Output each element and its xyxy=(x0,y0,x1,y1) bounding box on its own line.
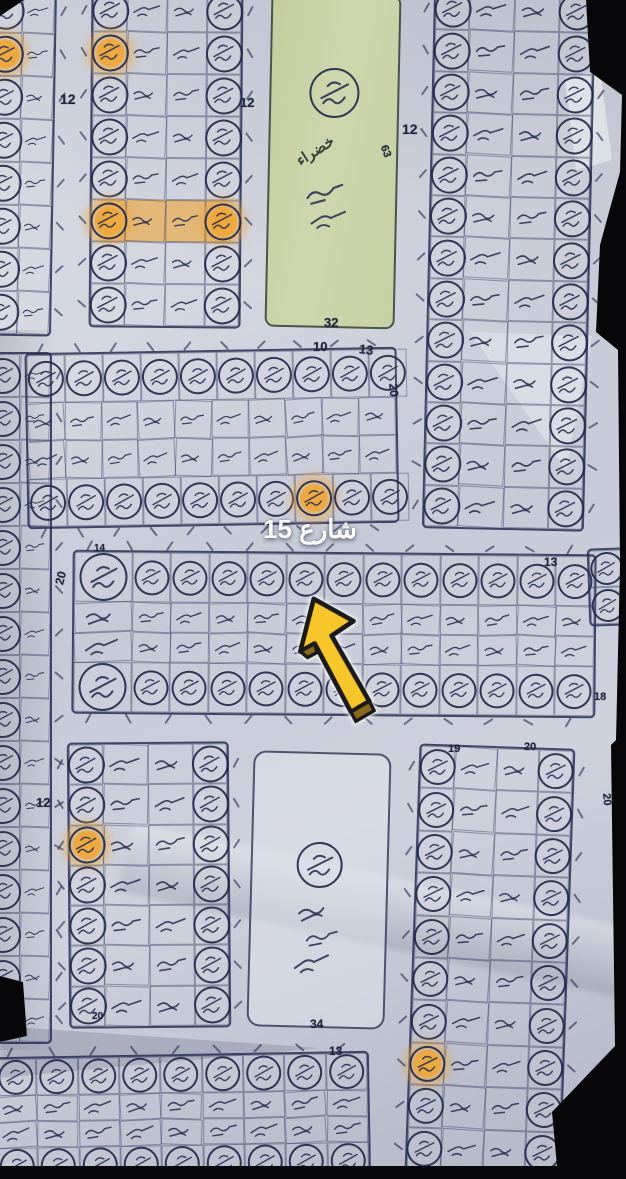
plot-handwriting-cell xyxy=(452,788,497,833)
plot-number-circle xyxy=(78,663,126,711)
plot-cell xyxy=(407,1127,442,1171)
plot-handwriting-cell xyxy=(359,435,396,474)
plot-cell xyxy=(208,663,247,713)
plot-cell xyxy=(0,290,18,334)
survey-tick-mark xyxy=(256,340,265,349)
plot-row xyxy=(425,443,584,488)
plot-number-circle xyxy=(551,283,589,321)
plot-row xyxy=(0,913,50,956)
survey-tick-mark xyxy=(418,210,427,220)
survey-tick-mark xyxy=(420,127,428,137)
plot-cell xyxy=(428,319,463,361)
plot-row xyxy=(71,945,229,987)
plot-block-bottom-left xyxy=(67,741,231,1028)
street-15-caption: شارع 15 xyxy=(240,514,380,545)
plot-cell xyxy=(0,118,21,162)
plot-cell xyxy=(284,1053,326,1091)
street-number-label: 13 xyxy=(358,342,374,357)
survey-tick-mark xyxy=(411,460,422,467)
plot-number-circle xyxy=(68,827,105,864)
plot-number-circle xyxy=(205,119,242,156)
handwriting-scribble xyxy=(278,895,355,930)
street-number-label: 12 xyxy=(402,122,418,136)
plot-row xyxy=(0,0,55,34)
plot-handwriting-cell xyxy=(150,945,195,986)
map-paper: خضراء 1212121013201420131812192020132032… xyxy=(0,0,626,1179)
plot-row xyxy=(434,30,593,75)
plot-handwriting-cell xyxy=(509,238,555,280)
plot-cell xyxy=(0,354,20,397)
plot-cell xyxy=(478,665,517,715)
plot-handwriting-cell xyxy=(37,1121,79,1148)
plot-cell xyxy=(0,956,20,999)
plot-number-circle xyxy=(0,358,21,394)
survey-tick-mark xyxy=(407,803,414,814)
plot-handwriting-cell xyxy=(450,831,495,876)
survey-tick-mark xyxy=(598,48,605,59)
plot-number-circle xyxy=(441,672,476,707)
plot-row xyxy=(431,154,590,199)
plot-row xyxy=(435,0,594,33)
survey-tick-mark xyxy=(59,49,66,60)
survey-tick-mark xyxy=(244,715,253,725)
plot-number-circle xyxy=(416,833,453,870)
plot-handwriting-cell xyxy=(489,960,532,1004)
survey-tick-mark xyxy=(150,527,158,537)
plot-row xyxy=(589,549,624,587)
plot-row xyxy=(411,1000,564,1048)
plot-number-circle xyxy=(426,321,464,359)
plot-handwriting-cell xyxy=(509,197,555,239)
plot-row xyxy=(0,827,50,870)
survey-tick-mark xyxy=(55,222,64,232)
plot-number-circle xyxy=(206,1145,242,1179)
plot-handwriting-cell xyxy=(284,397,323,438)
plot-handwriting-cell xyxy=(19,568,50,612)
plot-block-right-stub xyxy=(587,547,626,626)
plot-handwriting-cell xyxy=(126,31,168,75)
plot-number-circle xyxy=(210,670,245,705)
plot-number-circle xyxy=(192,826,229,863)
survey-tick-mark xyxy=(587,464,598,471)
plot-number-circle xyxy=(0,831,21,867)
plot-number-circle xyxy=(427,280,465,318)
plot-cell xyxy=(181,476,220,524)
plot-cell xyxy=(430,237,465,279)
plot-cell xyxy=(65,354,104,402)
plot-row xyxy=(27,397,396,442)
plot-handwriting-cell xyxy=(120,1119,163,1147)
plot-handwriting-cell xyxy=(443,1043,488,1088)
survey-tick-mark xyxy=(403,717,413,725)
plot-handwriting-cell xyxy=(486,1045,529,1089)
plot-cell xyxy=(247,663,286,713)
plot-number-circle xyxy=(365,562,400,597)
green-space-area: خضراء xyxy=(265,0,402,329)
survey-tick-mark xyxy=(233,838,241,848)
plot-number-circle xyxy=(558,0,596,31)
plot-handwriting-cell xyxy=(104,945,150,986)
plot-cell xyxy=(417,830,452,874)
survey-tick-mark xyxy=(233,960,242,969)
survey-tick-mark xyxy=(403,888,411,898)
plot-cell xyxy=(0,247,18,291)
plot-cell xyxy=(516,666,555,716)
plot-handwriting-cell xyxy=(358,397,395,436)
plot-cell xyxy=(558,32,593,74)
survey-tick-mark xyxy=(577,808,584,819)
plot-row xyxy=(27,349,396,403)
plot-number-circle xyxy=(296,480,333,517)
plot-number-circle xyxy=(403,562,438,597)
plot-cell xyxy=(559,0,594,33)
plot-cell xyxy=(243,1054,285,1092)
plot-number-circle xyxy=(418,791,455,828)
plot-number-circle xyxy=(193,906,230,943)
plot-row xyxy=(590,586,625,624)
plot-handwriting-cell xyxy=(18,204,52,249)
survey-tick-mark xyxy=(568,1021,578,1030)
plot-cell xyxy=(143,477,182,525)
plot-row xyxy=(70,904,228,946)
survey-tick-mark xyxy=(80,46,87,56)
plot-cell xyxy=(78,1057,120,1095)
survey-tick-mark xyxy=(78,215,87,224)
plot-number-circle xyxy=(531,922,568,959)
plot-number-circle xyxy=(524,1134,561,1171)
plot-row xyxy=(414,915,567,963)
street-number-label: 12 xyxy=(240,96,254,109)
survey-tick-mark xyxy=(77,257,86,266)
plot-cell xyxy=(0,32,22,76)
green-area-label: خضراء xyxy=(293,132,338,170)
handwriting-scribble xyxy=(294,206,365,233)
plot-handwriting-cell xyxy=(506,362,552,404)
plot-handwriting-cell xyxy=(103,864,149,905)
survey-tick-mark xyxy=(523,719,534,726)
plot-block-bottom-strip xyxy=(0,1051,371,1179)
plot-number-circle xyxy=(256,356,293,393)
plot-handwriting-cell xyxy=(19,826,50,870)
plot-number-circle xyxy=(205,1056,241,1092)
plot-handwriting-cell xyxy=(65,440,102,479)
survey-tick-mark xyxy=(77,299,87,308)
survey-tick-mark xyxy=(245,132,253,142)
survey-tick-mark xyxy=(423,3,430,14)
survey-tick-mark xyxy=(596,131,604,141)
plot-number-circle xyxy=(412,961,449,998)
survey-tick-mark xyxy=(60,6,67,17)
plot-handwriting-cell xyxy=(19,611,50,655)
plot-number-circle xyxy=(134,560,169,595)
plot-row xyxy=(0,698,50,741)
survey-tick-mark xyxy=(246,48,253,58)
plot-row xyxy=(430,237,589,282)
plot-cell xyxy=(326,1053,368,1091)
plot-number-circle xyxy=(372,479,409,516)
plot-cell xyxy=(194,864,228,905)
plot-handwriting-cell xyxy=(203,1118,244,1144)
plot-handwriting-cell xyxy=(19,869,50,913)
plot-number-circle xyxy=(89,244,126,281)
plot-handwriting-cell xyxy=(516,635,556,667)
plot-number-circle xyxy=(546,490,584,528)
plot-row xyxy=(69,784,227,826)
plot-number-circle xyxy=(525,1092,562,1129)
plot-cell xyxy=(528,1046,563,1090)
plot-number-circle xyxy=(246,1055,282,1091)
plot-cell xyxy=(216,351,255,399)
plot-handwriting-cell xyxy=(125,199,167,243)
plot-cell xyxy=(532,919,567,963)
survey-tick-mark xyxy=(400,973,409,983)
plot-handwriting-cell xyxy=(166,74,206,116)
plot-number-circle xyxy=(431,115,469,153)
plot-handwriting-cell xyxy=(148,784,193,825)
plot-row xyxy=(428,319,587,364)
plot-handwriting-cell xyxy=(19,118,53,163)
survey-tick-mark xyxy=(54,714,64,722)
plot-cell xyxy=(70,865,104,906)
plot-row xyxy=(429,278,588,323)
plot-handwriting-cell xyxy=(507,321,553,363)
plot-number-circle xyxy=(557,35,595,73)
plot-cell xyxy=(193,824,227,865)
plot-handwriting-cell xyxy=(131,632,171,664)
plot-row xyxy=(0,290,50,334)
plot-handwriting-cell xyxy=(19,525,50,569)
plot-row xyxy=(0,204,51,248)
plot-cell xyxy=(91,283,125,325)
street-number-label: 12 xyxy=(60,92,76,106)
plot-number-circle xyxy=(415,876,452,913)
plot-cell xyxy=(141,353,180,401)
survey-tick-mark xyxy=(421,86,429,96)
plot-number-circle xyxy=(289,1144,325,1179)
plot-cell xyxy=(209,553,248,603)
plot-handwriting-cell xyxy=(401,604,441,636)
plot-row xyxy=(424,485,583,530)
survey-tick-mark xyxy=(395,1100,405,1108)
survey-tick-mark xyxy=(146,342,154,352)
plot-number-circle xyxy=(0,1003,21,1039)
plot-handwriting-cell xyxy=(19,998,50,1042)
plot-row xyxy=(69,743,227,785)
survey-tick-mark xyxy=(398,1015,408,1024)
survey-tick-mark xyxy=(186,526,194,536)
plot-handwriting-cell xyxy=(149,864,194,905)
plot-cell xyxy=(170,663,209,713)
street-number-label: 20 xyxy=(387,383,400,397)
plot-handwriting-cell xyxy=(466,112,513,156)
plot-handwriting-cell xyxy=(468,0,515,32)
plot-number-circle xyxy=(0,745,21,781)
plot-cell xyxy=(92,73,126,115)
plot-cell xyxy=(0,698,20,741)
survey-tick-mark xyxy=(483,718,493,725)
plot-cell xyxy=(203,1144,245,1179)
plot-number-circle xyxy=(294,356,331,393)
plot-cell xyxy=(69,825,103,866)
plot-row xyxy=(92,157,240,200)
plot-cell xyxy=(410,1042,445,1086)
plot-cell xyxy=(424,485,459,527)
plot-cell xyxy=(525,1131,560,1175)
plot-number-circle xyxy=(430,156,468,194)
plot-cell xyxy=(554,198,589,240)
plot-handwriting-cell xyxy=(449,873,494,918)
plot-row xyxy=(430,195,589,240)
plot-handwriting-cell xyxy=(37,1095,79,1122)
plot-handwriting-cell xyxy=(322,435,359,474)
plot-cell xyxy=(194,904,228,945)
plot-handwriting-cell xyxy=(0,1120,38,1149)
plot-handwriting-cell xyxy=(467,71,514,115)
survey-tick-mark xyxy=(223,526,232,535)
survey-tick-mark xyxy=(85,713,92,724)
plot-handwriting-cell xyxy=(285,435,324,476)
plot-handwriting-cell xyxy=(165,242,205,284)
survey-tick-mark xyxy=(599,7,606,18)
plot-number-circle xyxy=(81,1058,117,1094)
survey-tick-mark xyxy=(206,541,214,551)
survey-tick-mark xyxy=(233,919,242,929)
plot-handwriting-cell xyxy=(165,284,205,326)
plot-cell xyxy=(0,75,22,119)
survey-tick-mark xyxy=(443,717,453,725)
survey-tick-mark xyxy=(183,341,191,351)
plot-number-circle xyxy=(329,1054,365,1090)
survey-tick-mark xyxy=(73,343,81,353)
plot-handwriting-cell xyxy=(446,958,491,1003)
plot-handwriting-cell xyxy=(478,605,517,636)
plot-number-circle xyxy=(165,1146,201,1179)
plot-number-circle xyxy=(413,918,450,955)
plot-cell xyxy=(67,478,106,526)
plot-cell xyxy=(202,1055,244,1093)
survey-tick-mark xyxy=(233,879,241,889)
plot-handwriting-cell xyxy=(465,154,512,198)
plot-number-circle xyxy=(527,1049,564,1086)
survey-tick-mark xyxy=(524,546,535,553)
survey-tick-mark xyxy=(592,256,601,265)
survey-tick-mark xyxy=(54,308,64,317)
plot-number-circle xyxy=(0,1060,34,1096)
street-number-label: 18 xyxy=(594,692,606,703)
plot-cell xyxy=(162,1145,204,1179)
plot-number-circle xyxy=(172,560,207,595)
plot-number-circle xyxy=(533,880,570,917)
plot-cell xyxy=(91,199,125,241)
plot-cell xyxy=(408,1085,443,1129)
plot-handwriting-cell xyxy=(161,1118,203,1145)
plot-number-circle xyxy=(204,203,241,240)
survey-tick-mark xyxy=(243,301,253,310)
plot-cell xyxy=(0,612,20,655)
plot-cell xyxy=(0,397,20,440)
plot-number-circle xyxy=(549,366,587,404)
plot-cell xyxy=(206,158,240,200)
plot-handwriting-cell xyxy=(555,636,594,667)
plot-number-circle xyxy=(0,616,21,652)
plot-cell xyxy=(244,1143,286,1179)
plot-row xyxy=(0,118,53,162)
plot-handwriting-cell xyxy=(22,0,56,34)
survey-tick-mark xyxy=(55,585,64,594)
survey-tick-mark xyxy=(419,169,428,179)
plot-handwriting-cell xyxy=(487,1002,530,1046)
plot-number-circle xyxy=(91,34,128,71)
survey-tick-mark xyxy=(589,380,599,388)
plot-handwriting-cell xyxy=(103,824,149,865)
survey-tick-mark xyxy=(113,527,121,537)
survey-tick-mark xyxy=(445,544,455,552)
plot-number-circle xyxy=(68,786,105,823)
plot-handwriting-cell xyxy=(440,605,479,635)
plot-number-circle xyxy=(204,161,241,198)
street-number-label: 34 xyxy=(310,1018,323,1030)
plot-cell xyxy=(435,0,470,30)
plot-number-circle xyxy=(104,359,141,396)
plot-number-circle xyxy=(481,563,516,598)
plot-handwriting-cell xyxy=(503,487,549,529)
survey-tick-mark xyxy=(80,88,88,98)
plot-handwriting-cell xyxy=(175,438,213,477)
plot-handwriting-cell xyxy=(493,833,536,877)
plot-handwriting-cell xyxy=(125,157,167,201)
plot-number-circle xyxy=(180,358,217,395)
plot-cell xyxy=(69,785,103,826)
plot-cell xyxy=(550,405,585,447)
survey-tick-mark xyxy=(575,851,583,861)
plot-number-circle xyxy=(248,671,283,706)
survey-tick-mark xyxy=(330,339,340,347)
plot-handwriting-cell xyxy=(0,1094,38,1123)
plot-cell xyxy=(535,834,570,878)
plot-handwriting-cell xyxy=(79,1120,121,1147)
plot-row xyxy=(0,247,50,291)
plot-handwriting-cell xyxy=(248,398,286,437)
survey-tick-mark xyxy=(110,342,118,352)
plot-block-middle xyxy=(24,347,399,529)
plot-number-circle xyxy=(66,360,103,397)
plot-row xyxy=(92,115,240,158)
plot-number-circle xyxy=(424,404,462,442)
survey-tick-mark xyxy=(243,258,252,267)
plot-number-circle xyxy=(0,874,21,910)
plot-row xyxy=(91,199,239,242)
plot-cell xyxy=(79,1146,121,1179)
plot-handwriting-cell xyxy=(126,0,168,33)
plot-handwriting-cell xyxy=(243,1091,285,1118)
plot-handwriting-cell xyxy=(101,401,138,440)
plot-cell xyxy=(425,443,460,485)
plot-number-circle xyxy=(220,481,257,518)
plot-handwriting-cell xyxy=(484,1087,527,1131)
plot-number-circle xyxy=(211,560,246,595)
plot-handwriting-cell xyxy=(64,402,101,441)
survey-tick-mark xyxy=(415,293,424,302)
plot-handwriting-cell xyxy=(505,404,551,446)
survey-tick-mark xyxy=(54,671,64,680)
plot-number-circle xyxy=(39,1059,75,1095)
plot-cell xyxy=(195,945,229,986)
plot-cell xyxy=(590,586,625,624)
street-number-label: 14 xyxy=(94,544,105,554)
plot-number-circle xyxy=(28,360,65,397)
plot-number-circle xyxy=(518,673,553,708)
plot-row xyxy=(0,1142,369,1179)
